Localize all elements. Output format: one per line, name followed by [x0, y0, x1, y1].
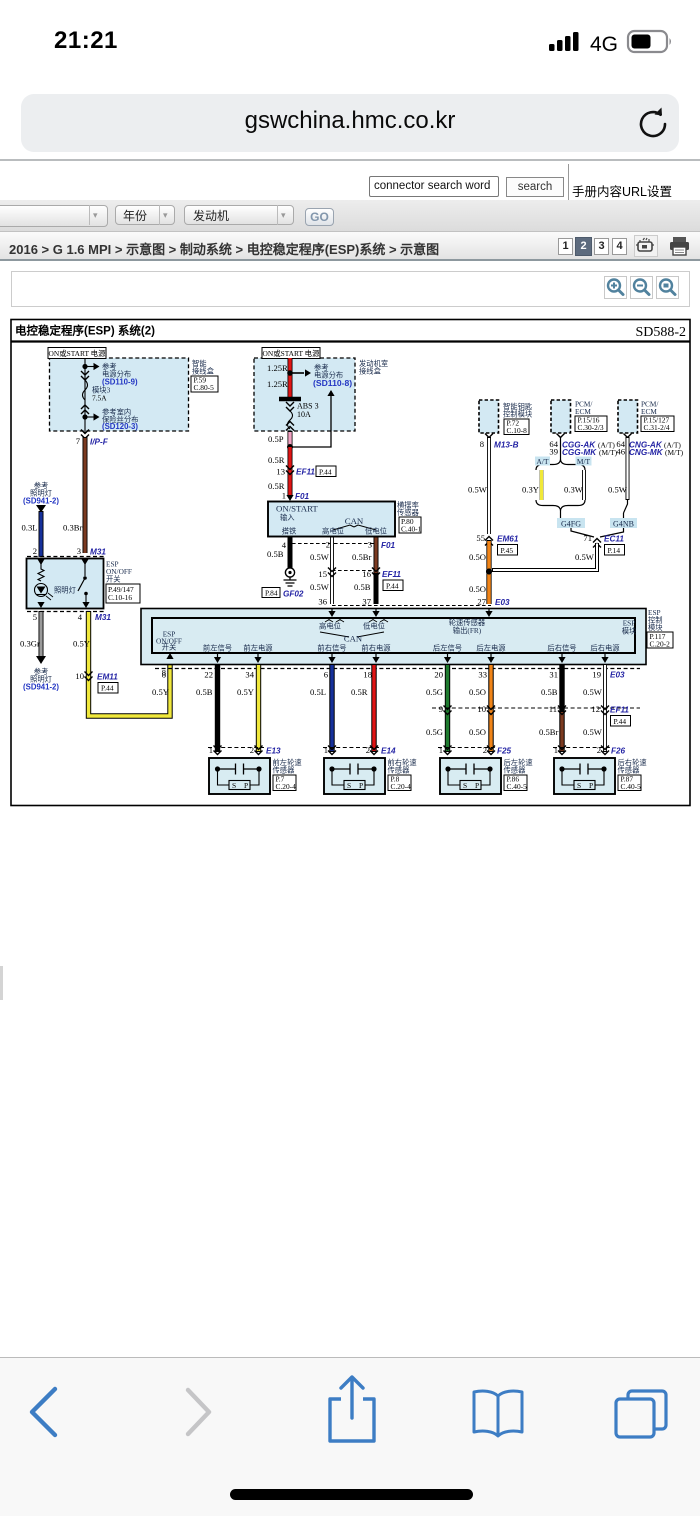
svg-text:0.5Y: 0.5Y: [73, 639, 90, 649]
svg-text:9: 9: [439, 704, 443, 714]
svg-text:71: 71: [583, 533, 592, 543]
svg-text:EF11: EF11: [610, 706, 629, 715]
svg-text:(SD110-8): (SD110-8): [313, 378, 352, 388]
svg-text:2: 2: [250, 745, 254, 755]
svg-text:低电位: 低电位: [365, 527, 387, 536]
svg-text:S: S: [347, 781, 351, 790]
svg-text:18: 18: [363, 670, 372, 680]
svg-text:C.10-8: C.10-8: [507, 426, 528, 435]
svg-text:接线盒: 接线盒: [359, 367, 382, 376]
svg-text:12: 12: [591, 704, 600, 714]
svg-text:0.5W: 0.5W: [468, 485, 488, 495]
svg-text:34: 34: [245, 670, 254, 680]
svg-text:模块: 模块: [622, 627, 637, 636]
svg-text:EM61: EM61: [497, 535, 519, 544]
svg-text:CGG-MK: CGG-MK: [562, 448, 597, 457]
svg-text:后左电源: 后左电源: [476, 644, 506, 653]
svg-text:ON或START 电源: ON或START 电源: [263, 349, 321, 358]
svg-text:1: 1: [439, 745, 443, 755]
svg-text:F25: F25: [497, 747, 512, 756]
svg-text:E03: E03: [610, 671, 625, 680]
svg-text:0.5Y: 0.5Y: [152, 687, 169, 697]
svg-text:P.45: P.45: [501, 546, 514, 555]
svg-text:4: 4: [78, 612, 83, 622]
svg-text:F01: F01: [381, 541, 396, 550]
svg-text:搭铁: 搭铁: [282, 527, 297, 536]
svg-text:EF11: EF11: [296, 468, 315, 477]
svg-text:C.40-1: C.40-1: [401, 525, 422, 534]
svg-text:C.30-2/3: C.30-2/3: [578, 423, 604, 432]
svg-text:8: 8: [480, 439, 484, 449]
svg-text:M13-B: M13-B: [494, 441, 519, 450]
svg-text:0.5B: 0.5B: [541, 687, 558, 697]
svg-text:输入: 输入: [280, 513, 295, 522]
svg-text:前右电源: 前右电源: [361, 644, 391, 653]
svg-text:39: 39: [549, 447, 558, 457]
svg-text:F26: F26: [611, 747, 626, 756]
svg-text:0.5R: 0.5R: [268, 481, 285, 491]
svg-text:0.3Br: 0.3Br: [63, 523, 82, 533]
svg-text:0.5P: 0.5P: [268, 434, 284, 444]
svg-text:7: 7: [76, 436, 81, 446]
svg-text:22: 22: [204, 670, 213, 680]
svg-text:3: 3: [368, 540, 372, 550]
svg-text:19: 19: [592, 670, 601, 680]
svg-text:SD588-2: SD588-2: [635, 325, 686, 340]
svg-text:0.3L: 0.3L: [22, 523, 38, 533]
svg-text:C.40-5: C.40-5: [621, 782, 642, 791]
svg-text:0.5W: 0.5W: [310, 582, 330, 592]
svg-text:ON或START 电源: ON或START 电源: [49, 349, 107, 358]
svg-text:3: 3: [77, 546, 81, 556]
svg-text:控制模块: 控制模块: [503, 410, 533, 419]
svg-text:开关: 开关: [106, 575, 121, 584]
svg-text:0.5Y: 0.5Y: [237, 687, 254, 697]
svg-text:37: 37: [362, 597, 371, 607]
svg-text:M31: M31: [90, 548, 106, 557]
svg-text:0.5W: 0.5W: [608, 485, 628, 495]
svg-text:P: P: [589, 781, 593, 790]
svg-text:(SD941-2): (SD941-2): [23, 497, 59, 506]
svg-text:0.5O: 0.5O: [469, 552, 486, 562]
svg-text:0.3Gr: 0.3Gr: [20, 639, 40, 649]
svg-text:M31: M31: [95, 613, 111, 622]
svg-text:0.5L: 0.5L: [310, 687, 326, 697]
svg-text:0.5R: 0.5R: [268, 455, 285, 465]
svg-text:G4FG: G4FG: [561, 520, 581, 529]
svg-text:8: 8: [162, 670, 166, 680]
svg-text:0.5G: 0.5G: [426, 727, 443, 737]
svg-text:1.25R: 1.25R: [267, 379, 288, 389]
svg-text:后左信号: 后左信号: [433, 644, 462, 653]
svg-text:E13: E13: [266, 747, 281, 756]
svg-text:P: P: [359, 781, 363, 790]
svg-text:10: 10: [75, 671, 84, 681]
svg-text:0.5W: 0.5W: [583, 727, 603, 737]
svg-text:0.5O: 0.5O: [469, 727, 486, 737]
svg-text:低电位: 低电位: [363, 622, 385, 631]
svg-text:20: 20: [434, 670, 443, 680]
svg-text:EF11: EF11: [382, 570, 401, 579]
svg-text:C.31-2/4: C.31-2/4: [644, 423, 670, 432]
svg-text:0.5W: 0.5W: [575, 552, 595, 562]
svg-text:P.44: P.44: [319, 468, 332, 477]
svg-text:2: 2: [33, 546, 37, 556]
svg-text:S: S: [577, 781, 581, 790]
svg-text:(SD120-3): (SD120-3): [102, 422, 138, 431]
svg-text:0.5Br: 0.5Br: [352, 552, 371, 562]
svg-text:A/T: A/T: [537, 457, 549, 466]
svg-text:P.14: P.14: [608, 546, 621, 555]
svg-text:0.3W: 0.3W: [564, 485, 584, 495]
svg-text:0.5B: 0.5B: [196, 687, 213, 697]
svg-text:接线盒: 接线盒: [192, 367, 215, 376]
svg-text:P.44: P.44: [101, 684, 114, 693]
svg-text:10: 10: [477, 704, 486, 714]
svg-text:2: 2: [326, 540, 330, 550]
svg-text:(SD941-2): (SD941-2): [23, 683, 59, 692]
svg-text:前右信号: 前右信号: [317, 644, 346, 653]
svg-text:C.40-5: C.40-5: [507, 782, 528, 791]
svg-text:输出(FR): 输出(FR): [453, 626, 482, 635]
svg-text:16: 16: [362, 569, 371, 579]
svg-text:CAN: CAN: [344, 634, 363, 644]
svg-text:(M/T): (M/T): [665, 448, 684, 457]
svg-text:GF02: GF02: [283, 590, 304, 599]
svg-text:55: 55: [476, 533, 485, 543]
svg-text:C.20-4: C.20-4: [276, 782, 297, 791]
svg-text:C.20-4: C.20-4: [391, 782, 412, 791]
svg-text:前左电源: 前左电源: [243, 644, 273, 653]
svg-text:1.25R: 1.25R: [267, 363, 288, 373]
svg-text:P: P: [475, 781, 479, 790]
svg-text:S: S: [463, 781, 467, 790]
svg-text:G4NB: G4NB: [613, 520, 634, 529]
svg-text:0.5O: 0.5O: [469, 584, 486, 594]
svg-text:电控稳定程序(ESP) 系统(2): 电控稳定程序(ESP) 系统(2): [15, 324, 155, 338]
svg-text:0.5W: 0.5W: [310, 552, 330, 562]
svg-text:0.5W: 0.5W: [583, 687, 603, 697]
svg-text:传感器: 传感器: [504, 766, 527, 775]
svg-text:S: S: [232, 781, 236, 790]
svg-text:2: 2: [366, 745, 370, 755]
svg-text:1: 1: [324, 745, 328, 755]
svg-text:传感器: 传感器: [397, 508, 420, 517]
svg-text:P.84: P.84: [265, 589, 278, 598]
svg-text:传感器: 传感器: [273, 766, 296, 775]
svg-text:33: 33: [478, 670, 487, 680]
svg-text:后右信号: 后右信号: [547, 644, 576, 653]
svg-text:EC11: EC11: [604, 535, 624, 544]
svg-text:照明灯: 照明灯: [54, 586, 76, 595]
svg-text:P: P: [244, 781, 248, 790]
svg-text:1: 1: [282, 491, 286, 501]
svg-text:5: 5: [33, 612, 37, 622]
svg-text:10A: 10A: [297, 410, 311, 419]
svg-text:0.5B: 0.5B: [267, 549, 284, 559]
svg-text:7.5A: 7.5A: [92, 394, 107, 403]
svg-text:CAN: CAN: [345, 516, 364, 526]
svg-text:EM11: EM11: [97, 673, 118, 682]
svg-text:P.44: P.44: [386, 582, 399, 591]
svg-text:13: 13: [276, 467, 285, 477]
svg-text:I/P-F: I/P-F: [90, 438, 109, 447]
svg-text:0.5B: 0.5B: [354, 582, 371, 592]
svg-text:C.80-5: C.80-5: [194, 383, 215, 392]
svg-text:0.3Y: 0.3Y: [522, 485, 539, 495]
svg-text:E03: E03: [495, 598, 510, 607]
svg-text:(M/T): (M/T): [599, 448, 618, 457]
svg-text:E14: E14: [381, 747, 396, 756]
svg-text:后右电源: 后右电源: [590, 644, 620, 653]
svg-text:2: 2: [597, 745, 601, 755]
svg-text:开关: 开关: [162, 643, 177, 652]
svg-text:27: 27: [477, 597, 486, 607]
svg-text:31: 31: [549, 670, 558, 680]
svg-text:前左信号: 前左信号: [203, 644, 232, 653]
svg-text:36: 36: [318, 597, 327, 607]
svg-text:C.10-16: C.10-16: [108, 593, 132, 602]
svg-text:传感器: 传感器: [388, 766, 411, 775]
svg-text:11: 11: [549, 704, 557, 714]
svg-text:1: 1: [554, 745, 558, 755]
svg-text:0.5G: 0.5G: [426, 687, 443, 697]
svg-text:P.44: P.44: [614, 717, 627, 726]
svg-text:F01: F01: [295, 492, 310, 501]
svg-text:0.5Br: 0.5Br: [539, 727, 558, 737]
svg-text:M/T: M/T: [577, 457, 591, 466]
svg-text:6: 6: [324, 670, 329, 680]
svg-text:传感器: 传感器: [618, 766, 641, 775]
svg-text:0.5R: 0.5R: [351, 687, 368, 697]
svg-text:2: 2: [483, 745, 487, 755]
svg-text:1: 1: [209, 745, 213, 755]
svg-text:46: 46: [616, 447, 625, 457]
svg-text:高电位: 高电位: [319, 622, 341, 631]
svg-text:高电位: 高电位: [322, 527, 344, 536]
svg-text:ON/START: ON/START: [276, 504, 318, 514]
svg-text:模块: 模块: [648, 623, 663, 632]
svg-text:0.5O: 0.5O: [469, 687, 486, 697]
svg-text:15: 15: [318, 569, 327, 579]
svg-text:C.20-2: C.20-2: [650, 640, 671, 649]
svg-text:CNG-MK: CNG-MK: [629, 448, 664, 457]
